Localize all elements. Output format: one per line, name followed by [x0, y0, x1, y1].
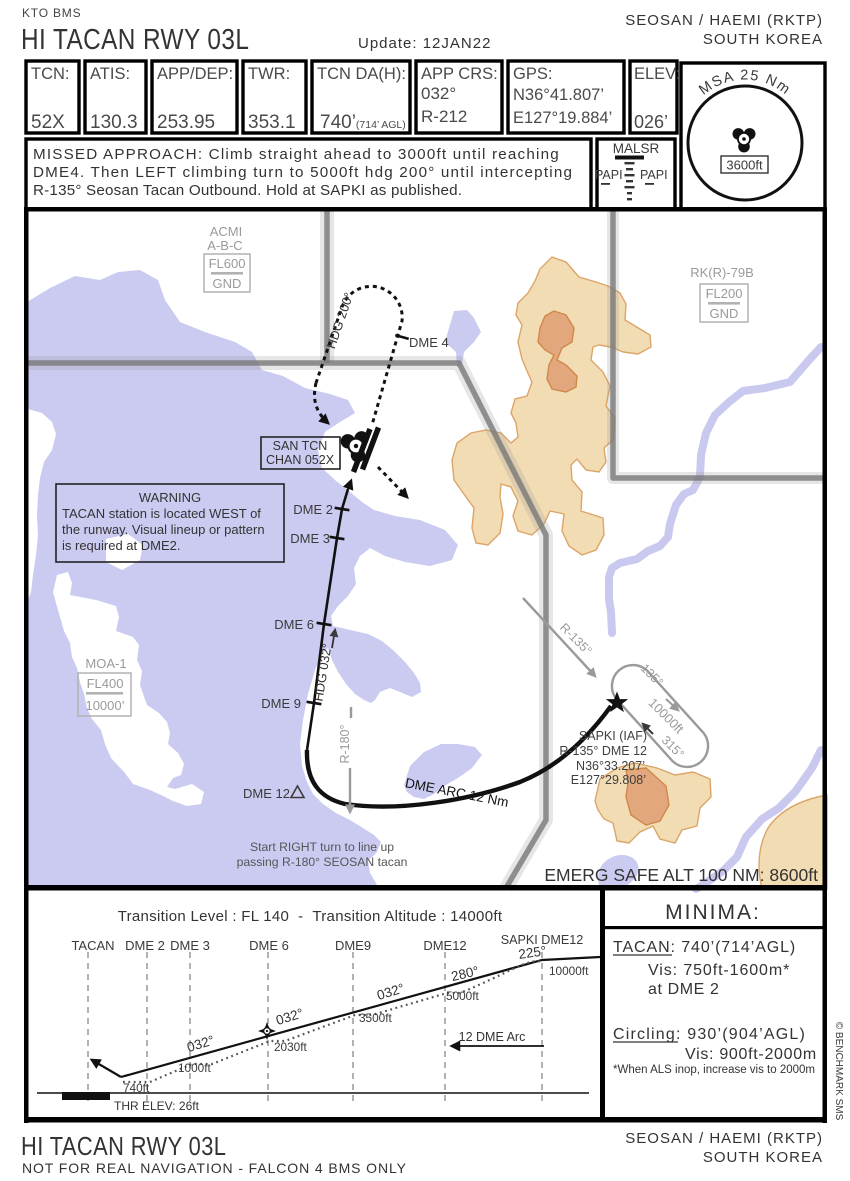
- svg-text:3600ft: 3600ft: [726, 158, 763, 173]
- svg-text:Circling: 930’(904’AGL): Circling: 930’(904’AGL): [613, 1026, 806, 1043]
- svg-text:3500ft: 3500ft: [359, 1011, 393, 1025]
- svg-text:ELEV:: ELEV:: [634, 65, 680, 83]
- svg-text:DME4. Then LEFT climbing turn: DME4. Then LEFT climbing turn to 5000ft …: [33, 164, 573, 181]
- svg-text:10000ft: 10000ft: [646, 695, 688, 737]
- svg-text:740’(714’ AGL): 740’(714’ AGL): [320, 112, 406, 133]
- svg-text:MISSED APPROACH: Climb straigh: MISSED APPROACH: Climb straight ahead to…: [33, 146, 560, 163]
- svg-text:APP/DEP:: APP/DEP:: [157, 65, 233, 83]
- svg-text:FL200: FL200: [706, 286, 743, 301]
- svg-text:DME 4: DME 4: [409, 335, 449, 350]
- svg-text:PAPI: PAPI: [595, 168, 623, 182]
- svg-text:passing R-180° SEOSAN tacan: passing R-180° SEOSAN tacan: [237, 855, 408, 869]
- svg-text:TCN DA(H):: TCN DA(H):: [317, 65, 406, 83]
- svg-text:DME 2: DME 2: [125, 938, 165, 953]
- svg-text:TACAN station is located WEST: TACAN station is located WEST of: [62, 506, 261, 521]
- svg-text:GND: GND: [213, 276, 242, 291]
- svg-text:CHAN 052X: CHAN 052X: [266, 453, 335, 467]
- svg-text:WARNING: WARNING: [139, 490, 201, 505]
- svg-text:at DME 2: at DME 2: [648, 981, 720, 998]
- svg-text:DME 2: DME 2: [293, 502, 333, 517]
- svg-text:10000ft: 10000ft: [549, 964, 589, 978]
- svg-text:026’: 026’: [634, 112, 668, 132]
- svg-text:Start RIGHT turn to line up: Start RIGHT turn to line up: [250, 840, 394, 854]
- svg-text:130.3: 130.3: [90, 112, 138, 133]
- svg-text:Transition Level : FL 140 -: Transition Level : FL 140 - Transition A…: [118, 908, 503, 925]
- svg-text:DME12: DME12: [423, 938, 466, 953]
- svg-text:MOA-1: MOA-1: [85, 656, 126, 671]
- svg-text:12 DME Arc: 12 DME Arc: [459, 1030, 526, 1044]
- svg-text:Vis: 750ft-1600m*: Vis: 750ft-1600m*: [648, 962, 790, 979]
- svg-text:10000’: 10000’: [85, 698, 124, 713]
- svg-text:R-135°: R-135°: [557, 620, 595, 658]
- svg-text:R-135° DME 12: R-135° DME 12: [559, 744, 647, 758]
- svg-text:TACAN: 740’(714’AGL): TACAN: 740’(714’AGL): [613, 939, 796, 956]
- svg-text:A-B-C: A-B-C: [207, 238, 242, 253]
- svg-text:N36°41.807’: N36°41.807’: [513, 86, 604, 104]
- svg-text:GND: GND: [710, 306, 739, 321]
- svg-text:APP CRS:: APP CRS:: [421, 65, 498, 83]
- svg-text:R-180°: R-180°: [338, 724, 352, 763]
- svg-text:E127°19.884’: E127°19.884’: [513, 109, 612, 127]
- svg-text:DME 3: DME 3: [170, 938, 210, 953]
- svg-text:*When ALS inop, increase vis t: *When ALS inop, increase vis to 2000m: [613, 1064, 815, 1076]
- svg-text:DME 3: DME 3: [290, 531, 330, 546]
- svg-text:N36°33.207’: N36°33.207’: [576, 759, 645, 773]
- svg-text:SAN TCN: SAN TCN: [273, 439, 328, 453]
- svg-text:DME 6: DME 6: [249, 938, 289, 953]
- svg-text:GPS:: GPS:: [513, 65, 552, 83]
- svg-text:E127°29.808’: E127°29.808’: [571, 773, 646, 787]
- svg-text:2030ft: 2030ft: [274, 1040, 308, 1054]
- svg-text:TACAN: TACAN: [71, 938, 114, 953]
- svg-text:315°: 315°: [659, 733, 687, 761]
- svg-text:253.95: 253.95: [157, 112, 215, 133]
- svg-text:MALSR: MALSR: [613, 141, 660, 156]
- svg-text:FL600: FL600: [209, 256, 246, 271]
- svg-text:280°: 280°: [450, 963, 481, 984]
- svg-text:R-135° Seosan Tacan Outbound.: R-135° Seosan Tacan Outbound. Hold at SA…: [33, 182, 462, 199]
- svg-text:SAPKI (IAF): SAPKI (IAF): [579, 729, 647, 743]
- svg-text:PAPI: PAPI: [640, 168, 668, 182]
- svg-text:52X: 52X: [31, 112, 65, 133]
- svg-text:1000ft: 1000ft: [178, 1061, 212, 1075]
- svg-text:RK(R)-79B: RK(R)-79B: [690, 265, 754, 280]
- svg-text:DME9: DME9: [335, 938, 371, 953]
- svg-text:DME 6: DME 6: [274, 617, 314, 632]
- svg-text:THR ELEV: 26ft: THR ELEV: 26ft: [114, 1099, 200, 1113]
- svg-text:FL400: FL400: [87, 676, 124, 691]
- svg-text:the runway. Visual lineup or p: the runway. Visual lineup or pattern: [62, 522, 265, 537]
- svg-text:MSA 25 Nm: MSA 25 Nm: [696, 68, 794, 99]
- svg-text:© BENCHMARK SMS: © BENCHMARK SMS: [833, 1022, 844, 1121]
- svg-text:EMERG SAFE ALT 100 NM: 8600ft: EMERG SAFE ALT 100 NM: 8600ft: [544, 865, 818, 885]
- svg-text:MINIMA:: MINIMA:: [665, 901, 761, 924]
- svg-text:032°: 032°: [421, 84, 456, 103]
- svg-text:032°: 032°: [274, 1005, 305, 1028]
- svg-text:TWR:: TWR:: [248, 65, 290, 83]
- svg-text:TCN:: TCN:: [31, 65, 70, 83]
- svg-text:ATIS:: ATIS:: [90, 65, 130, 83]
- svg-text:ACMI: ACMI: [210, 224, 243, 239]
- svg-text:DME 12: DME 12: [243, 786, 290, 801]
- svg-text:353.1: 353.1: [248, 112, 296, 133]
- svg-text:is required at DME2.: is required at DME2.: [62, 538, 181, 553]
- svg-text:Vis: 900ft-2000m: Vis: 900ft-2000m: [685, 1046, 817, 1063]
- svg-text:5000ft: 5000ft: [446, 989, 480, 1003]
- svg-text:DME 9: DME 9: [261, 696, 301, 711]
- svg-text:R-212: R-212: [421, 107, 467, 126]
